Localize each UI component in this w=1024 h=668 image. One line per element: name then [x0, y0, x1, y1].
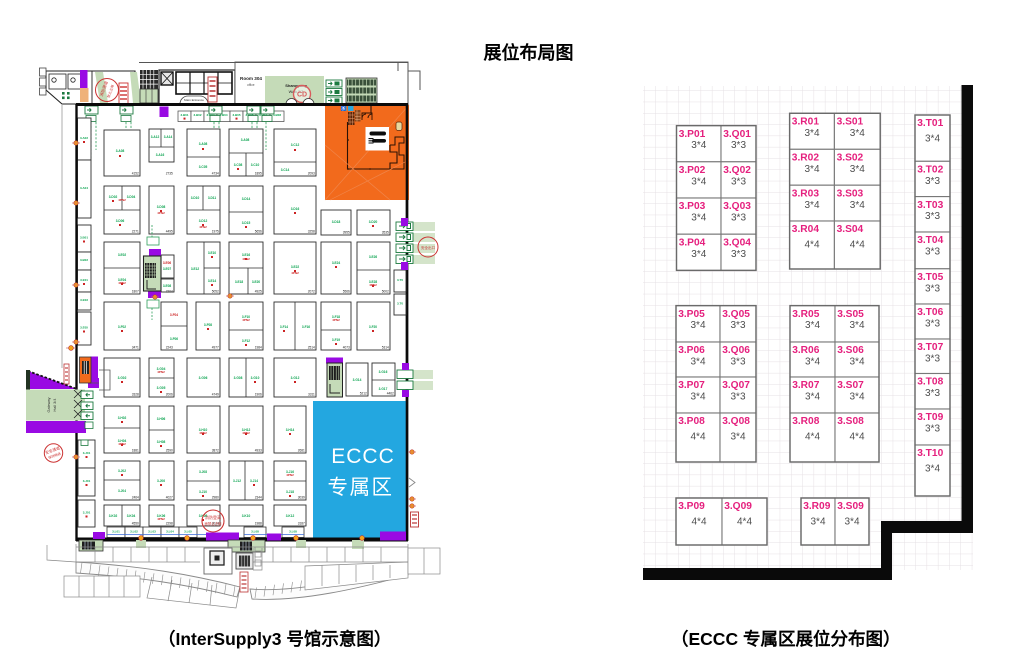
svg-text:3.H14: 3.H14	[286, 428, 295, 432]
svg-text:3.L05: 3.L05	[184, 530, 192, 534]
svg-text:3.T03: 3.T03	[917, 200, 943, 211]
svg-text:3.T02: 3.T02	[917, 165, 943, 176]
svg-text:3.A08: 3.A08	[116, 149, 125, 153]
svg-text:3.P07: 3.P07	[678, 380, 705, 391]
svg-text:3.P06: 3.P06	[678, 345, 705, 356]
svg-text:3.A08: 3.A08	[241, 138, 250, 142]
svg-text:3.J01: 3.J01	[83, 479, 91, 483]
svg-text:3872: 3872	[212, 449, 219, 453]
svg-text:3.F04: 3.F04	[170, 313, 178, 317]
svg-text:3.E06: 3.E06	[163, 261, 172, 265]
svg-text:4152: 4152	[132, 172, 139, 176]
svg-text:3258: 3258	[308, 230, 315, 234]
svg-text:4462: 4462	[387, 392, 394, 396]
svg-text:3.T01: 3.T01	[917, 118, 943, 129]
svg-text:3.Q04: 3.Q04	[723, 237, 751, 248]
svg-text:4PN2: 4PN2	[291, 271, 299, 275]
svg-text:4495: 4495	[166, 230, 173, 234]
svg-text:3*3: 3*3	[925, 388, 940, 399]
svg-text:2093: 2093	[308, 172, 315, 176]
svg-text:3.D20: 3.D20	[369, 220, 378, 224]
svg-text:3.L03: 3.L03	[148, 530, 156, 534]
svg-text:3.D10: 3.D10	[191, 196, 200, 200]
svg-text:3.B02: 3.B02	[193, 113, 201, 117]
svg-text:3.J10: 3.J10	[199, 490, 207, 494]
svg-text:5002: 5002	[382, 290, 389, 294]
svg-text:3*3: 3*3	[731, 249, 746, 260]
svg-text:4*4: 4*4	[805, 432, 820, 443]
svg-text:3.J01: 3.J01	[83, 511, 91, 515]
svg-text:4PN2: 4PN2	[199, 431, 207, 435]
svg-text:office: office	[247, 83, 255, 87]
svg-text:3.H08: 3.H08	[157, 440, 166, 444]
svg-text:3.L02: 3.L02	[130, 530, 138, 534]
svg-text:4*4: 4*4	[691, 517, 706, 528]
svg-text:4PN2: 4PN2	[242, 318, 250, 322]
svg-text:3.A16: 3.A16	[156, 153, 165, 157]
svg-text:3*3: 3*3	[731, 176, 746, 187]
svg-text:2298: 2298	[166, 522, 173, 526]
svg-text:3.T0: 3.T0	[397, 302, 403, 306]
svg-text:2464: 2464	[132, 496, 139, 500]
svg-text:CD: CD	[297, 92, 307, 99]
svg-text:3.D02: 3.D02	[109, 195, 118, 199]
svg-text:3.S03: 3.S03	[837, 188, 864, 199]
svg-text:3.D04: 3.D04	[127, 195, 136, 199]
svg-text:安全出口: 安全出口	[421, 245, 436, 250]
svg-text:3*3: 3*3	[730, 357, 745, 368]
svg-text:3.D14: 3.D14	[242, 197, 251, 201]
svg-text:3.J14: 3.J14	[250, 479, 258, 483]
svg-text:3.G17: 3.G17	[379, 387, 388, 391]
svg-text:3.R03: 3.R03	[792, 188, 820, 199]
svg-text:3187: 3187	[298, 522, 305, 526]
svg-text:3*4: 3*4	[690, 392, 705, 403]
svg-text:3.R08: 3.R08	[792, 416, 820, 427]
svg-text:3.G16: 3.G16	[379, 370, 388, 374]
svg-text:3.J04: 3.J04	[118, 489, 126, 493]
svg-text:3.F06: 3.F06	[170, 337, 178, 341]
svg-text:3*4: 3*4	[730, 432, 745, 443]
svg-text:2204: 2204	[166, 290, 173, 294]
svg-text:3*4: 3*4	[844, 517, 859, 528]
svg-text:3.H02: 3.H02	[118, 416, 127, 420]
svg-text:3.P08: 3.P08	[678, 416, 705, 427]
svg-text:3.T10: 3.T10	[917, 448, 943, 459]
svg-text:3*3: 3*3	[925, 176, 940, 187]
svg-text:3*4: 3*4	[805, 320, 820, 331]
svg-text:4PN2: 4PN2	[118, 198, 126, 202]
svg-text:3.G08: 3.G08	[234, 376, 243, 380]
svg-text:1807: 1807	[132, 290, 139, 294]
svg-text:3.G14: 3.G14	[353, 378, 362, 382]
svg-text:4977: 4977	[212, 346, 219, 350]
svg-text:3.F16: 3.F16	[302, 325, 310, 329]
svg-text:3.R04: 3.R04	[792, 224, 820, 235]
svg-text:3*4: 3*4	[925, 464, 940, 475]
svg-text:3.J02: 3.J02	[118, 469, 126, 473]
svg-text:3.T0: 3.T0	[397, 278, 403, 282]
svg-text:3.E12: 3.E12	[191, 267, 200, 271]
svg-text:3*3: 3*3	[925, 424, 940, 435]
svg-text:4550: 4550	[132, 522, 139, 526]
svg-text:3.E07: 3.E07	[163, 267, 172, 271]
svg-text:3.E10: 3.E10	[208, 251, 217, 255]
svg-text:3*4: 3*4	[810, 517, 825, 528]
svg-text:Room 304: Room 304	[240, 76, 262, 81]
svg-text:3.J18: 3.J18	[286, 490, 294, 494]
svg-text:4PN2: 4PN2	[286, 473, 294, 477]
svg-text:Gateway: Gateway	[47, 397, 51, 412]
svg-text:Hall 3/4: Hall 3/4	[53, 399, 57, 412]
svg-text:3.K10: 3.K10	[242, 514, 251, 518]
svg-text:3.G10: 3.G10	[251, 376, 260, 380]
svg-text:4PN2: 4PN2	[157, 517, 165, 521]
svg-text:专属区: 专属区	[328, 476, 394, 499]
svg-text:4PN2: 4PN2	[369, 283, 377, 287]
svg-text:3.D15: 3.D15	[242, 221, 251, 225]
svg-text:3.P05: 3.P05	[678, 309, 705, 320]
svg-text:3.E26: 3.E26	[369, 255, 378, 259]
svg-text:3.F14: 3.F14	[280, 325, 288, 329]
svg-text:4*4: 4*4	[737, 517, 752, 528]
svg-text:3039: 3039	[298, 496, 305, 500]
svg-text:2681: 2681	[298, 449, 305, 453]
svg-text:3.J01: 3.J01	[83, 451, 91, 455]
svg-text:3*4: 3*4	[690, 320, 705, 331]
svg-text:3*4: 3*4	[849, 320, 864, 331]
svg-text:2243: 2243	[166, 346, 173, 350]
svg-text:5052: 5052	[212, 290, 219, 294]
svg-text:消防登高: 消防登高	[205, 514, 221, 520]
svg-text:3*4: 3*4	[690, 357, 705, 368]
svg-text:3.R06: 3.R06	[792, 345, 820, 356]
svg-text:2006: 2006	[166, 393, 173, 397]
svg-text:4*4: 4*4	[690, 432, 705, 443]
svg-text:3.T05: 3.T05	[917, 272, 943, 283]
svg-text:3.Q03: 3.Q03	[723, 201, 751, 212]
svg-text:3.Q05: 3.Q05	[722, 309, 750, 320]
svg-text:4*4: 4*4	[849, 432, 864, 443]
svg-text:3.T09: 3.T09	[917, 412, 943, 423]
svg-text:3*4: 3*4	[691, 249, 706, 260]
svg-text:3*4: 3*4	[805, 357, 820, 368]
svg-text:2735: 2735	[166, 172, 173, 176]
svg-text:3.E02: 3.E02	[118, 253, 127, 257]
svg-text:3*4: 3*4	[925, 134, 940, 145]
svg-text:3.Q06: 3.Q06	[722, 345, 750, 356]
svg-text:3.L04: 3.L04	[166, 530, 174, 534]
svg-text:5656: 5656	[255, 230, 262, 234]
svg-text:4734: 4734	[212, 172, 219, 176]
svg-text:3.F20: 3.F20	[369, 325, 377, 329]
svg-text:3.Q07: 3.Q07	[722, 380, 750, 391]
svg-text:3.F12: 3.F12	[242, 339, 250, 343]
svg-text:4PN2: 4PN2	[242, 431, 250, 435]
svg-text:Main Entrance: Main Entrance	[184, 98, 204, 102]
svg-text:3.E18: 3.E18	[235, 280, 244, 284]
svg-text:2980: 2980	[212, 496, 219, 500]
svg-text:3.S07: 3.S07	[837, 380, 864, 391]
svg-text:3*3: 3*3	[730, 392, 745, 403]
svg-text:3.D08: 3.D08	[157, 205, 166, 209]
svg-text:3.Q02: 3.Q02	[723, 165, 751, 176]
svg-text:3.G02: 3.G02	[118, 376, 127, 380]
svg-text:3.R05: 3.R05	[792, 309, 820, 320]
svg-text:3.J08: 3.J08	[199, 470, 207, 474]
svg-text:3.T08: 3.T08	[917, 377, 943, 388]
svg-text:1906: 1906	[255, 393, 262, 397]
svg-text:3955: 3955	[343, 231, 350, 235]
svg-text:3.L08: 3.L08	[289, 530, 297, 534]
svg-text:3.P09: 3.P09	[678, 501, 705, 512]
svg-text:3.Q01: 3.Q01	[723, 129, 751, 140]
svg-text:3.F19: 3.F19	[332, 338, 340, 342]
svg-text:3.G12: 3.G12	[291, 376, 300, 380]
svg-text:3.R02: 3.R02	[792, 153, 820, 164]
svg-text:3.L01: 3.L01	[112, 530, 120, 534]
svg-text:3.B01: 3.B01	[80, 236, 88, 240]
svg-text:4933: 4933	[255, 449, 262, 453]
svg-text:4925: 4925	[255, 290, 262, 294]
svg-text:4073: 4073	[343, 346, 350, 350]
svg-text:3.J12: 3.J12	[233, 479, 241, 483]
svg-text:3*3: 3*3	[730, 320, 745, 331]
svg-text:3*3: 3*3	[925, 247, 940, 258]
svg-text:3.D06: 3.D06	[116, 219, 125, 223]
svg-text:3*4: 3*4	[691, 140, 706, 151]
svg-text:3*4: 3*4	[804, 200, 819, 211]
svg-text:4027: 4027	[166, 496, 173, 500]
svg-text:3.D12: 3.D12	[199, 219, 208, 223]
svg-text:3.D16: 3.D16	[291, 207, 300, 211]
svg-text:3.S05: 3.S05	[837, 309, 864, 320]
svg-text:2072: 2072	[308, 290, 315, 294]
svg-text:3*3: 3*3	[731, 213, 746, 224]
svg-text:3535: 3535	[382, 231, 389, 235]
svg-text:3.A14: 3.A14	[164, 135, 173, 139]
svg-text:3.A12: 3.A12	[151, 135, 160, 139]
svg-text:3.R01: 3.R01	[792, 117, 820, 128]
svg-text:3*4: 3*4	[849, 392, 864, 403]
svg-text:2514: 2514	[308, 346, 315, 350]
svg-text:4PN2: 4PN2	[118, 281, 126, 285]
svg-text:3*3: 3*3	[925, 319, 940, 330]
svg-text:3.E20: 3.E20	[252, 280, 261, 284]
svg-text:4PN2: 4PN2	[157, 370, 165, 374]
svg-text:1881: 1881	[132, 449, 139, 453]
svg-text:3.F02: 3.F02	[118, 325, 126, 329]
svg-text:3.J06: 3.J06	[157, 479, 165, 483]
svg-text:3.S09: 3.S09	[837, 501, 864, 512]
svg-text:3.P02: 3.P02	[679, 165, 706, 176]
svg-text:4*4: 4*4	[804, 240, 819, 251]
svg-text:2590: 2590	[166, 449, 173, 453]
svg-text:3.C05: 3.C05	[199, 165, 208, 169]
svg-text:3*4: 3*4	[804, 128, 819, 139]
svg-text:3*4: 3*4	[805, 392, 820, 403]
svg-text:5314: 5314	[382, 346, 389, 350]
svg-text:2344: 2344	[255, 496, 262, 500]
svg-text:3.A08: 3.A08	[199, 142, 208, 146]
svg-text:1984: 1984	[255, 346, 262, 350]
svg-text:3.A02: 3.A02	[80, 136, 88, 140]
svg-text:1895: 1895	[255, 172, 262, 176]
svg-text:3.K02: 3.K02	[109, 514, 118, 518]
svg-text:3.S04: 3.S04	[837, 224, 864, 235]
svg-text:3.E01: 3.E01	[80, 278, 88, 282]
svg-text:3.E08: 3.E08	[163, 284, 172, 288]
svg-text:4PN2: 4PN2	[118, 442, 126, 446]
svg-text:3.E14: 3.E14	[208, 279, 217, 283]
svg-text:3.E22: 3.E22	[291, 265, 300, 269]
svg-text:3*3: 3*3	[925, 211, 940, 222]
svg-text:3.K12: 3.K12	[286, 514, 295, 518]
svg-text:3.C10: 3.C10	[251, 163, 260, 167]
svg-text:4PN2: 4PN2	[199, 225, 207, 229]
svg-text:3.B05: 3.B05	[232, 113, 240, 117]
svg-text:3.K04: 3.K04	[127, 514, 136, 518]
svg-text:3.P03: 3.P03	[679, 201, 706, 212]
svg-text:3*3: 3*3	[925, 283, 940, 294]
svg-text:3.F08: 3.F08	[204, 323, 212, 327]
svg-text:3.T04: 3.T04	[917, 235, 943, 246]
svg-text:3.B02: 3.B02	[80, 258, 88, 262]
svg-text:3.C14: 3.C14	[281, 168, 290, 172]
svg-text:4PN2: 4PN2	[332, 318, 340, 322]
svg-text:3.S06: 3.S06	[837, 345, 864, 356]
svg-text:3.E03: 3.E03	[80, 298, 88, 302]
svg-text:3.Q09: 3.Q09	[724, 501, 752, 512]
svg-text:3311: 3311	[308, 393, 315, 397]
svg-text:4PN2: 4PN2	[242, 257, 250, 261]
svg-text:3.E24: 3.E24	[332, 261, 341, 265]
svg-text:3471: 3471	[132, 346, 139, 350]
svg-text:3.S01: 3.S01	[837, 117, 864, 128]
svg-text:4*4: 4*4	[850, 240, 865, 251]
svg-text:3.A04: 3.A04	[80, 186, 88, 190]
svg-text:3.G06: 3.G06	[199, 376, 208, 380]
svg-text:1975: 1975	[212, 230, 219, 234]
svg-text:3*4: 3*4	[691, 176, 706, 187]
svg-text:3.P04: 3.P04	[679, 237, 706, 248]
svg-text:3*4: 3*4	[850, 200, 865, 211]
svg-text:3*4: 3*4	[849, 357, 864, 368]
svg-text:3.L08: 3.L08	[251, 530, 259, 534]
svg-text:3.R09: 3.R09	[803, 501, 831, 512]
svg-text:3.T07: 3.T07	[917, 342, 943, 353]
svg-text:3.H06: 3.H06	[157, 417, 166, 421]
svg-text:3.P01: 3.P01	[679, 129, 706, 140]
svg-text:3.E05: 3.E05	[80, 326, 88, 330]
svg-text:3*4: 3*4	[850, 128, 865, 139]
svg-text:面禁止占用: 面禁止占用	[205, 521, 222, 526]
svg-text:4749: 4749	[212, 393, 219, 397]
svg-text:3*4: 3*4	[691, 213, 706, 224]
svg-text:5566: 5566	[343, 290, 350, 294]
svg-text:1988: 1988	[255, 522, 262, 526]
svg-text:3.T06: 3.T06	[917, 307, 943, 318]
svg-text:3328: 3328	[132, 393, 139, 397]
svg-text:3*3: 3*3	[925, 354, 940, 365]
svg-text:5212: 5212	[360, 392, 367, 396]
svg-text:3.G05: 3.G05	[157, 386, 166, 390]
svg-text:3.S08: 3.S08	[837, 416, 864, 427]
svg-text:ECCC: ECCC	[331, 445, 395, 468]
svg-text:3*3: 3*3	[731, 140, 746, 151]
svg-text:3.D18: 3.D18	[332, 220, 341, 224]
svg-text:3.B01: 3.B01	[180, 113, 188, 117]
svg-text:3.C08: 3.C08	[234, 163, 243, 167]
svg-text:3.D11: 3.D11	[208, 196, 217, 200]
svg-text:2271: 2271	[132, 230, 139, 234]
svg-text:3*4: 3*4	[804, 164, 819, 175]
svg-text:3.R07: 3.R07	[792, 380, 820, 391]
svg-text:4PN2: 4PN2	[157, 211, 165, 215]
svg-text:3.S02: 3.S02	[837, 153, 864, 164]
svg-text:3*4: 3*4	[850, 164, 865, 175]
svg-text:3.C12: 3.C12	[291, 143, 300, 147]
svg-text:3.Q08: 3.Q08	[722, 416, 750, 427]
